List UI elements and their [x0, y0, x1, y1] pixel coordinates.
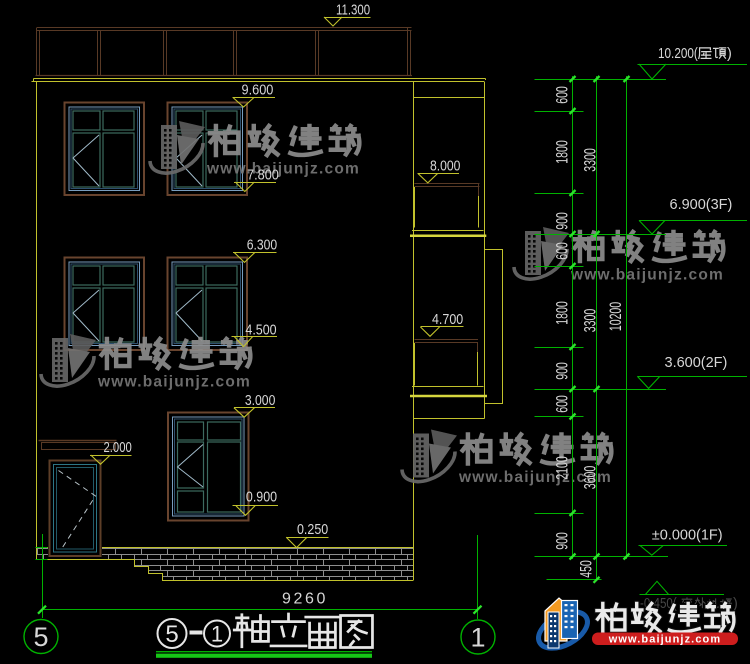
svg-text:600: 600 [552, 242, 571, 260]
svg-text:5: 5 [33, 622, 48, 652]
svg-text:3300: 3300 [580, 148, 599, 172]
svg-text:9.600: 9.600 [242, 82, 274, 98]
svg-text:600: 600 [552, 395, 571, 413]
svg-text:1: 1 [211, 622, 223, 647]
svg-text:7.800: 7.800 [247, 167, 279, 183]
svg-text:10200: 10200 [606, 302, 625, 332]
svg-text:3300: 3300 [580, 309, 599, 333]
svg-text:900: 900 [552, 212, 571, 230]
svg-text:9260: 9260 [282, 591, 328, 608]
svg-text:600: 600 [552, 86, 571, 104]
svg-text:0.900: 0.900 [246, 489, 277, 505]
svg-text:1800: 1800 [552, 301, 571, 325]
svg-text:3.000: 3.000 [245, 392, 275, 408]
svg-text:www.baijunjz.com: www.baijunjz.com [608, 633, 722, 645]
svg-text:): ) [727, 46, 732, 62]
svg-text:1: 1 [470, 623, 485, 653]
svg-text:900: 900 [552, 362, 571, 380]
svg-text:3600: 3600 [580, 466, 599, 490]
svg-text:4.700: 4.700 [432, 311, 463, 327]
svg-text:3.600(2F): 3.600(2F) [665, 355, 728, 371]
svg-text:10.200(: 10.200( [658, 45, 698, 61]
svg-text:450: 450 [576, 560, 595, 578]
svg-text:8.000: 8.000 [430, 158, 460, 174]
svg-text:2100: 2100 [552, 456, 571, 480]
svg-text:): ) [733, 596, 738, 612]
svg-text:5: 5 [165, 621, 178, 648]
svg-text:900: 900 [552, 532, 571, 550]
svg-text:4.500: 4.500 [245, 322, 276, 338]
svg-text:±0.000(1F): ±0.000(1F) [652, 528, 723, 544]
svg-text:6.300: 6.300 [247, 237, 277, 253]
svg-text:1800: 1800 [552, 140, 571, 164]
svg-text:6.900(3F): 6.900(3F) [670, 197, 733, 213]
svg-text:11.300: 11.300 [336, 1, 370, 18]
svg-text:0.250: 0.250 [297, 521, 328, 537]
svg-text:2.000: 2.000 [104, 438, 132, 455]
